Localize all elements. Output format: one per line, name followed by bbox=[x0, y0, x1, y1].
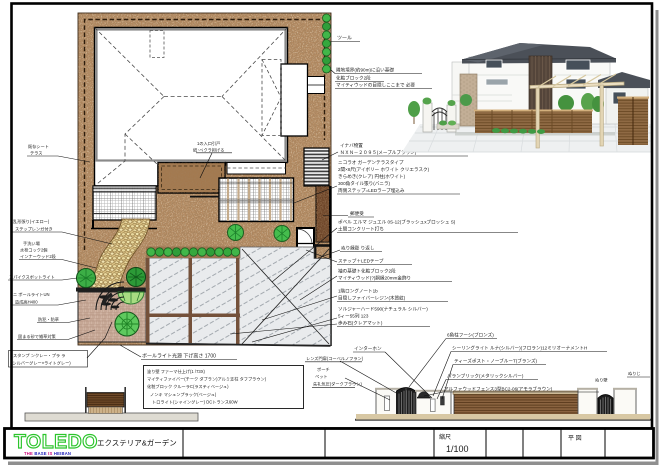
svg-text:歩み石(クレアマット): 歩み石(クレアマット) bbox=[338, 320, 383, 327]
svg-text:エクステリア&ガーデン: エクステリア&ガーデン bbox=[97, 438, 177, 448]
svg-text:隣地境界(約90m)に沿い基礎: 隣地境界(約90m)に沿い基礎 bbox=[336, 67, 394, 74]
svg-text:5ィー55列 123: 5ィー55列 123 bbox=[338, 313, 369, 320]
svg-text:化粧ブロック2段: 化粧ブロック2段 bbox=[336, 75, 371, 82]
svg-text:1階ロングノート1b: 1階ロングノート1b bbox=[338, 288, 378, 295]
svg-text:縮尺: 縮尺 bbox=[439, 433, 451, 441]
svg-text:先礼気圧(ダークブラウン): 先礼気圧(ダークブラウン) bbox=[313, 381, 362, 388]
svg-text:パランブリック(メタリックシルバー): パランブリック(メタリックシルバー) bbox=[447, 373, 524, 380]
svg-text:紙･ベクラ担げる: 紙･ベクラ担げる bbox=[193, 147, 224, 154]
svg-text:ポーチ: ポーチ bbox=[317, 366, 330, 372]
svg-text:土間コンクリート打ち: 土間コンクリート打ち bbox=[338, 226, 384, 233]
svg-text:1/100: 1/100 bbox=[446, 444, 469, 454]
svg-text:手洗い場: 手洗い場 bbox=[23, 240, 41, 247]
svg-text:塗り壁 ファーマ仕上げ(1 /73X): 塗り壁 ファーマ仕上げ(1 /73X) bbox=[147, 368, 206, 375]
svg-text:ぬり縁彫 り返し: ぬり縁彫 り返し bbox=[341, 245, 375, 252]
svg-text:マイティウッド(?)胴縁20mm金飾り: マイティウッド(?)胴縁20mm金飾り bbox=[338, 275, 411, 282]
svg-text:目隠しファイバーレジン(木質紋): 目隠しファイバーレジン(木質紋) bbox=[338, 295, 406, 302]
svg-text:ボールライト光源 下げ高さ 1700: ボールライト光源 下げ高さ 1700 bbox=[142, 353, 216, 360]
svg-text:ニコラオ ガーデンテラスタイプ: ニコラオ ガーデンテラスタイプ bbox=[338, 159, 404, 166]
svg-text:造成高H400: 造成高H400 bbox=[15, 299, 38, 306]
svg-text:スタンプ ンクレー・プラ ラ: スタンプ ンクレー・プラ ラ bbox=[13, 352, 65, 359]
svg-text:シーリングライト ルナ(シルバー)(フロラン)12ミリオーナ: シーリングライト ルナ(シルバー)(フロラン)12ミリオーナメントH bbox=[452, 345, 587, 352]
svg-text:郵便受: 郵便受 bbox=[350, 210, 364, 217]
svg-text:固まる砂で雑草対策: 固まる砂で雑草対策 bbox=[18, 333, 57, 340]
svg-text:ティーズポスト・ノーブルーT(ブランズ): ティーズポスト・ノーブルーT(ブランズ) bbox=[454, 358, 538, 365]
svg-text:イナバ物置: イナバ物置 bbox=[340, 142, 363, 149]
svg-text:平 図: 平 図 bbox=[568, 435, 582, 442]
svg-text:マイティファイバー(チーク ダブラン)アルミ支柱 タフブラウ: マイティファイバー(チーク ダブラン)アルミ支柱 タフブラウン) bbox=[147, 376, 267, 383]
svg-text:(シルバーグレー×ライトグレー): (シルバーグレー×ライトグレー) bbox=[11, 360, 71, 367]
svg-text:乱形張り(イエロー): 乱形張り(イエロー) bbox=[13, 218, 50, 225]
svg-text:マイティウッドの目隠しここまで 必要: マイティウッドの目隠しここまで 必要 bbox=[336, 82, 415, 89]
svg-text:インターホン: インターホン bbox=[354, 345, 382, 352]
svg-text:トロライト(シャイングレー) DCトランス60W: トロライト(シャイングレー) DCトランス60W bbox=[152, 398, 238, 405]
svg-text:2間×8尺(アイボリー ホワイト クリエラスク): 2間×8尺(アイボリー ホワイト クリエラスク) bbox=[338, 166, 430, 173]
svg-text:300角タイル張り(バニラ): 300角タイル張り(バニラ) bbox=[338, 180, 391, 187]
svg-text:きらめき(クレア) 円柱(ホワイト): きらめき(クレア) 円柱(ホワイト) bbox=[338, 173, 406, 180]
svg-text:既存シート: 既存シート bbox=[28, 143, 49, 150]
svg-text:アルファウッドフェンス3型BC2-06(アモラブラウン): アルファウッドフェンス3型BC2-06(アモラブラウン) bbox=[444, 385, 553, 392]
svg-text:THE BASE IS HEIBAN: THE BASE IS HEIBAN bbox=[24, 451, 71, 456]
svg-text:水栓コック2個: 水栓コック2個 bbox=[20, 247, 47, 254]
svg-text:1の入口引戸: 1の入口引戸 bbox=[197, 140, 220, 147]
svg-text:スパイクスポットライト: スパイクスポットライト bbox=[9, 274, 55, 281]
svg-text:レンズ門扉(コーベルノフラン): レンズ門扉(コーベルノフラン) bbox=[306, 355, 364, 362]
svg-text:ニ ポールライトUN: ニ ポールライトUN bbox=[13, 291, 50, 298]
svg-text:化粧ブロック クルーラC(ラスティベージュ): 化粧ブロック クルーラC(ラスティベージュ) bbox=[147, 383, 229, 390]
svg-text:両側ステップ=LEDラープ埋込み: 両側ステップ=LEDラープ埋込み bbox=[338, 187, 405, 194]
svg-text:インナーウッド2段: インナーウッド2段 bbox=[20, 253, 57, 260]
svg-text:防犯・防草: 防犯・防草 bbox=[38, 316, 59, 323]
svg-text:ぬり壁: ぬり壁 bbox=[595, 377, 608, 384]
svg-text:袖の基礎ト化粧ブロック2段: 袖の基礎ト化粧ブロック2段 bbox=[338, 268, 396, 275]
svg-text:ステップレンガ付き: ステップレンガ付き bbox=[15, 226, 53, 233]
svg-text:ポベル エルマ ジュエル 0S-12(ブラッシュxブロッシュ: ポベル エルマ ジュエル 0S-12(ブラッシュxブロッシュ S) bbox=[338, 219, 456, 226]
svg-text:6角柱フーシ(ブロンズ): 6角柱フーシ(ブロンズ) bbox=[447, 332, 494, 339]
svg-text:ペット: ペット bbox=[315, 374, 328, 379]
svg-text:ツール: ツール bbox=[337, 36, 352, 42]
svg-text:TOLEDO: TOLEDO bbox=[14, 431, 98, 453]
